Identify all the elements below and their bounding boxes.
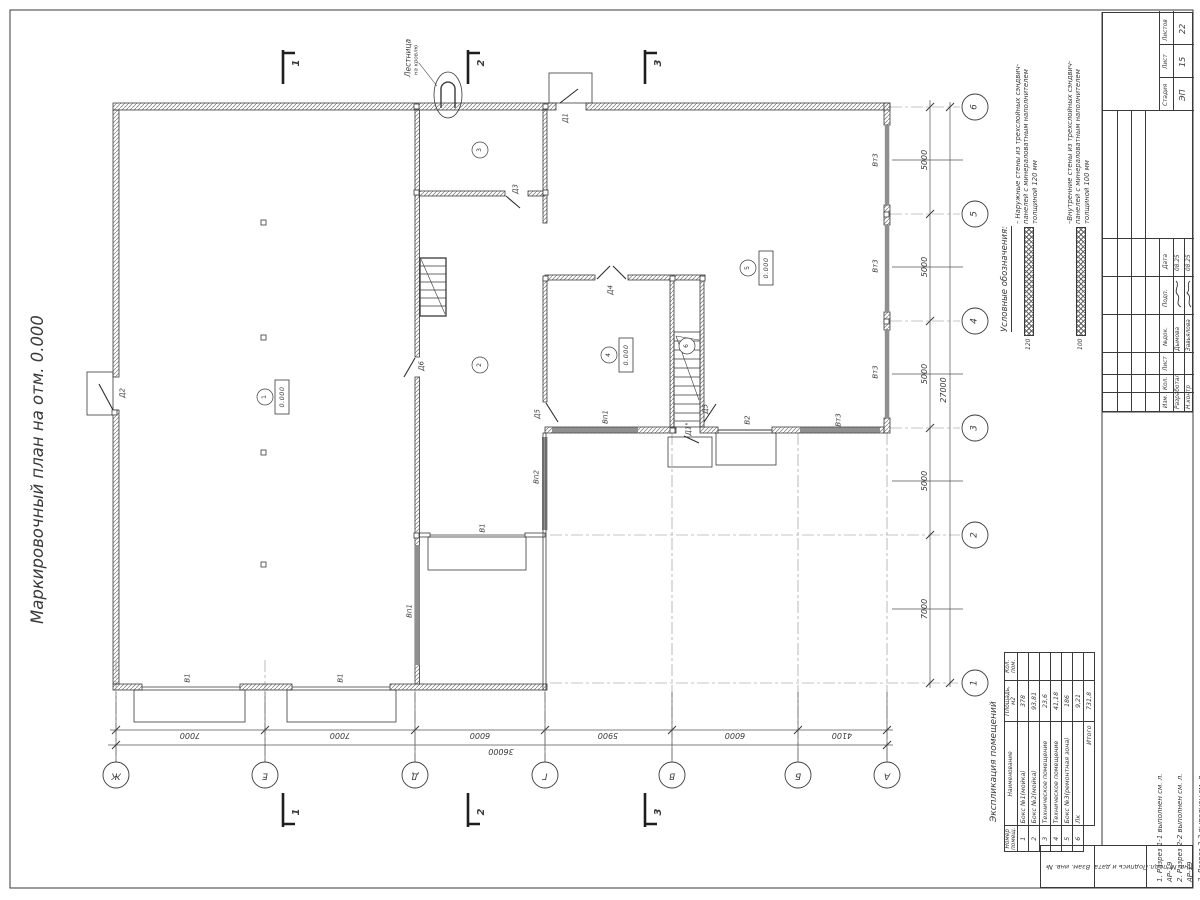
stage-value: ЭП	[1178, 89, 1187, 101]
cell-area: 9,21	[1073, 680, 1084, 722]
signature-icon	[1174, 279, 1183, 309]
room-number: 1	[262, 395, 268, 399]
drawing-sheet: Маркировочный план на отм. 0.000 Д1 Д2 Д…	[0, 0, 1200, 900]
door-label: Д5	[703, 404, 710, 414]
cell-name: Лк	[1073, 722, 1084, 826]
cell-name: Техническое помещение	[1040, 722, 1051, 826]
table-row: 6 Лк 9,21	[1073, 653, 1084, 852]
dimension: 4100	[832, 731, 852, 739]
gate-label: Вт3	[836, 413, 843, 426]
door-label: Д2	[120, 388, 127, 398]
room-table: Номер помещ. Наименование Площадь, м2 Ко…	[1004, 652, 1095, 852]
total-label: Итого	[1084, 722, 1095, 826]
axis-label: 3	[971, 425, 980, 431]
door-label: Д4	[608, 285, 615, 295]
col-num: Номер помещ.	[1005, 826, 1018, 852]
col-area: Площадь, м2	[1005, 680, 1018, 722]
table-row: 3 Техническое помещение 23,6	[1040, 653, 1051, 852]
dimension: 6000	[725, 731, 745, 739]
gate-label: Вп1	[603, 410, 610, 424]
table-row: 4 Техническое помещение 41,18	[1051, 653, 1062, 852]
gate-label: Вт3	[873, 153, 880, 166]
cell-count	[1018, 653, 1029, 681]
signature-icon	[1185, 279, 1194, 309]
sheet-value: 15	[1178, 57, 1187, 67]
gate-label: В1	[480, 523, 487, 532]
drawing-title-block: Маркировочный план на отм. 0.000	[28, 272, 54, 624]
legend-entry-text: –Внутренние стены из трехслойных сэндвич…	[1066, 54, 1091, 224]
room-explication: Экспликация помещений Номер помещ. Наиме…	[988, 652, 1110, 852]
axis-label: Б	[795, 771, 801, 780]
door-label: Д1"	[686, 422, 693, 435]
elevation-mark: 0.000	[279, 386, 286, 407]
cell-area: 186	[1062, 680, 1073, 722]
stamp-role: Разработал	[1175, 374, 1181, 409]
room-number: 4	[606, 353, 612, 357]
attr-label: Инв. № подл.	[1148, 863, 1193, 871]
stamp-role: Н.контр	[1186, 385, 1192, 409]
axis-label: В	[669, 771, 675, 780]
gate-label: В2	[745, 415, 752, 424]
cell-count	[1051, 653, 1062, 681]
cell-count	[1029, 653, 1040, 681]
dimension: 7000	[921, 599, 929, 619]
axis-label: 4	[971, 318, 980, 324]
room-number: 5	[745, 266, 751, 270]
table-total-row: Итого 731,8	[1084, 653, 1095, 852]
dimension-total: 36000	[488, 747, 513, 755]
cell-count	[1062, 653, 1073, 681]
cell-area: 41,18	[1051, 680, 1062, 722]
cell-name: Техническое помещение	[1051, 722, 1062, 826]
ladder-note-line1: Лестница	[404, 39, 412, 77]
stamp-col: Дата	[1163, 254, 1169, 269]
cell-name: Бокс №2(мойка)	[1029, 722, 1040, 826]
attr-cell: Взам. инв. №	[1041, 846, 1094, 887]
total-area: 731,8	[1084, 680, 1095, 722]
section-mark-label: 2	[477, 809, 487, 816]
stamp-date: 08.25	[1175, 254, 1181, 271]
gate-label: В1	[338, 673, 345, 682]
cell-name: Бокс №1(мойка)	[1018, 722, 1029, 826]
cell-area: 378	[1018, 680, 1029, 722]
door-label: Д1	[563, 113, 570, 123]
sheets-value: 22	[1178, 24, 1187, 34]
attr-cell: Подпись и дата	[1094, 846, 1146, 887]
stamp-name: Дымова	[1175, 327, 1181, 351]
axis-label: 6	[971, 104, 980, 110]
table-header-row: Номер помещ. Наименование Площадь, м2 Ко…	[1005, 653, 1018, 852]
gate-label: Вп1	[407, 604, 414, 618]
door-label: Д6	[419, 361, 426, 371]
dimension: 7000	[180, 731, 200, 739]
axis-label: 2	[971, 532, 980, 538]
stamp-col: №док.	[1163, 327, 1169, 346]
section-mark-label: 3	[654, 60, 664, 67]
room-number: 6	[684, 344, 690, 348]
table-row: 5 Бокс №3(ремонтная зона) 186	[1062, 653, 1073, 852]
dimension: 5000	[921, 257, 929, 277]
gate-label: Вт3	[873, 365, 880, 378]
door-label: Д3	[513, 184, 520, 194]
axis-label: 5	[971, 211, 980, 217]
cell-count	[1073, 653, 1084, 681]
stamp-col: Лист	[1163, 356, 1169, 371]
stamp-date: 08.25	[1186, 254, 1192, 271]
dimension: 5900	[598, 731, 618, 739]
legend-entry-text: – Наружные стены из трехслойных сэндвич-…	[1014, 54, 1039, 224]
legend-dim: 120	[1025, 339, 1032, 350]
interior-wall-symbol	[1076, 227, 1086, 336]
section-mark-label: 1	[292, 809, 302, 816]
stamp-col: Кол.	[1163, 377, 1169, 390]
dimension: 7000	[330, 731, 350, 739]
attr-label: Взам. инв. №	[1045, 863, 1089, 871]
section-mark-label: 3	[654, 809, 664, 816]
cell-area: 23,6	[1040, 680, 1051, 722]
stage-label: Стадия	[1163, 84, 1169, 106]
gate-label: В1	[185, 673, 192, 682]
cell-num: 2	[1029, 826, 1040, 852]
section-mark-label: 2	[477, 60, 487, 67]
frame-attribute-cells: Взам. инв. № Подпись и дата Инв. № подл.	[1040, 845, 1193, 888]
legend: Условные обозначения: 120 – Наружные сте…	[1000, 60, 1108, 350]
legend-dim: 100	[1077, 339, 1084, 350]
gate-label: Вп2	[534, 470, 541, 484]
axis-label: А	[884, 771, 890, 780]
dimension: 5000	[921, 364, 929, 384]
stamp-name: Завьялова	[1186, 319, 1192, 351]
table-row: 1 Бокс №1(мойка) 378	[1018, 653, 1029, 852]
table-title: Экспликация помещений	[989, 701, 999, 822]
attr-cell: Инв. № подл.	[1146, 846, 1194, 887]
cell-count	[1040, 653, 1051, 681]
cell-area: 93,81	[1029, 680, 1040, 722]
dimension-total: 27000	[940, 377, 948, 402]
section-mark-label: 1	[292, 60, 302, 67]
gate-label: Вт3	[873, 259, 880, 272]
dimension: 5000	[921, 150, 929, 170]
attr-label: Подпись и дата	[1094, 863, 1148, 871]
sheet-label: Лист	[1163, 54, 1169, 69]
ladder-note-line2: на кровлю	[414, 45, 420, 75]
room-number: 3	[477, 148, 483, 152]
col-count: Кол. пом.	[1005, 653, 1018, 681]
axis-label: Ж	[111, 771, 121, 780]
legend-title: Условные обозначения:	[1000, 226, 1012, 332]
cell-name: Бокс №3(ремонтная зона)	[1062, 722, 1073, 826]
exterior-wall-symbol	[1024, 227, 1034, 336]
stamp-col: Изм.	[1163, 394, 1169, 408]
dimension: 6000	[470, 731, 490, 739]
axis-label: Д	[411, 771, 418, 780]
col-name: Наименование	[1005, 722, 1018, 826]
note-line: 3. Разрез 3-3 выполнен см. л. АР-19	[1196, 768, 1200, 882]
cell-num: 1	[1018, 826, 1029, 852]
axis-label: Е	[262, 771, 268, 780]
stamp-col: Подп.	[1163, 289, 1169, 307]
elevation-mark: 0.000	[763, 257, 770, 278]
table-row: 2 Бокс №2(мойка) 93,81	[1029, 653, 1040, 852]
axis-label: 1	[971, 680, 980, 686]
elevation-mark: 0.000	[623, 344, 630, 365]
title-block-stamp: Изм. Кол. Лист №док. Подп. Дата Разработ…	[1102, 12, 1193, 412]
door-label: Д5	[535, 409, 542, 419]
dimension: 5000	[921, 471, 929, 491]
page-title: Маркировочный план на отм. 0.000	[28, 272, 47, 624]
axis-label: Г	[542, 771, 547, 780]
sheets-label: Листов	[1163, 19, 1169, 41]
room-number: 2	[477, 363, 483, 367]
